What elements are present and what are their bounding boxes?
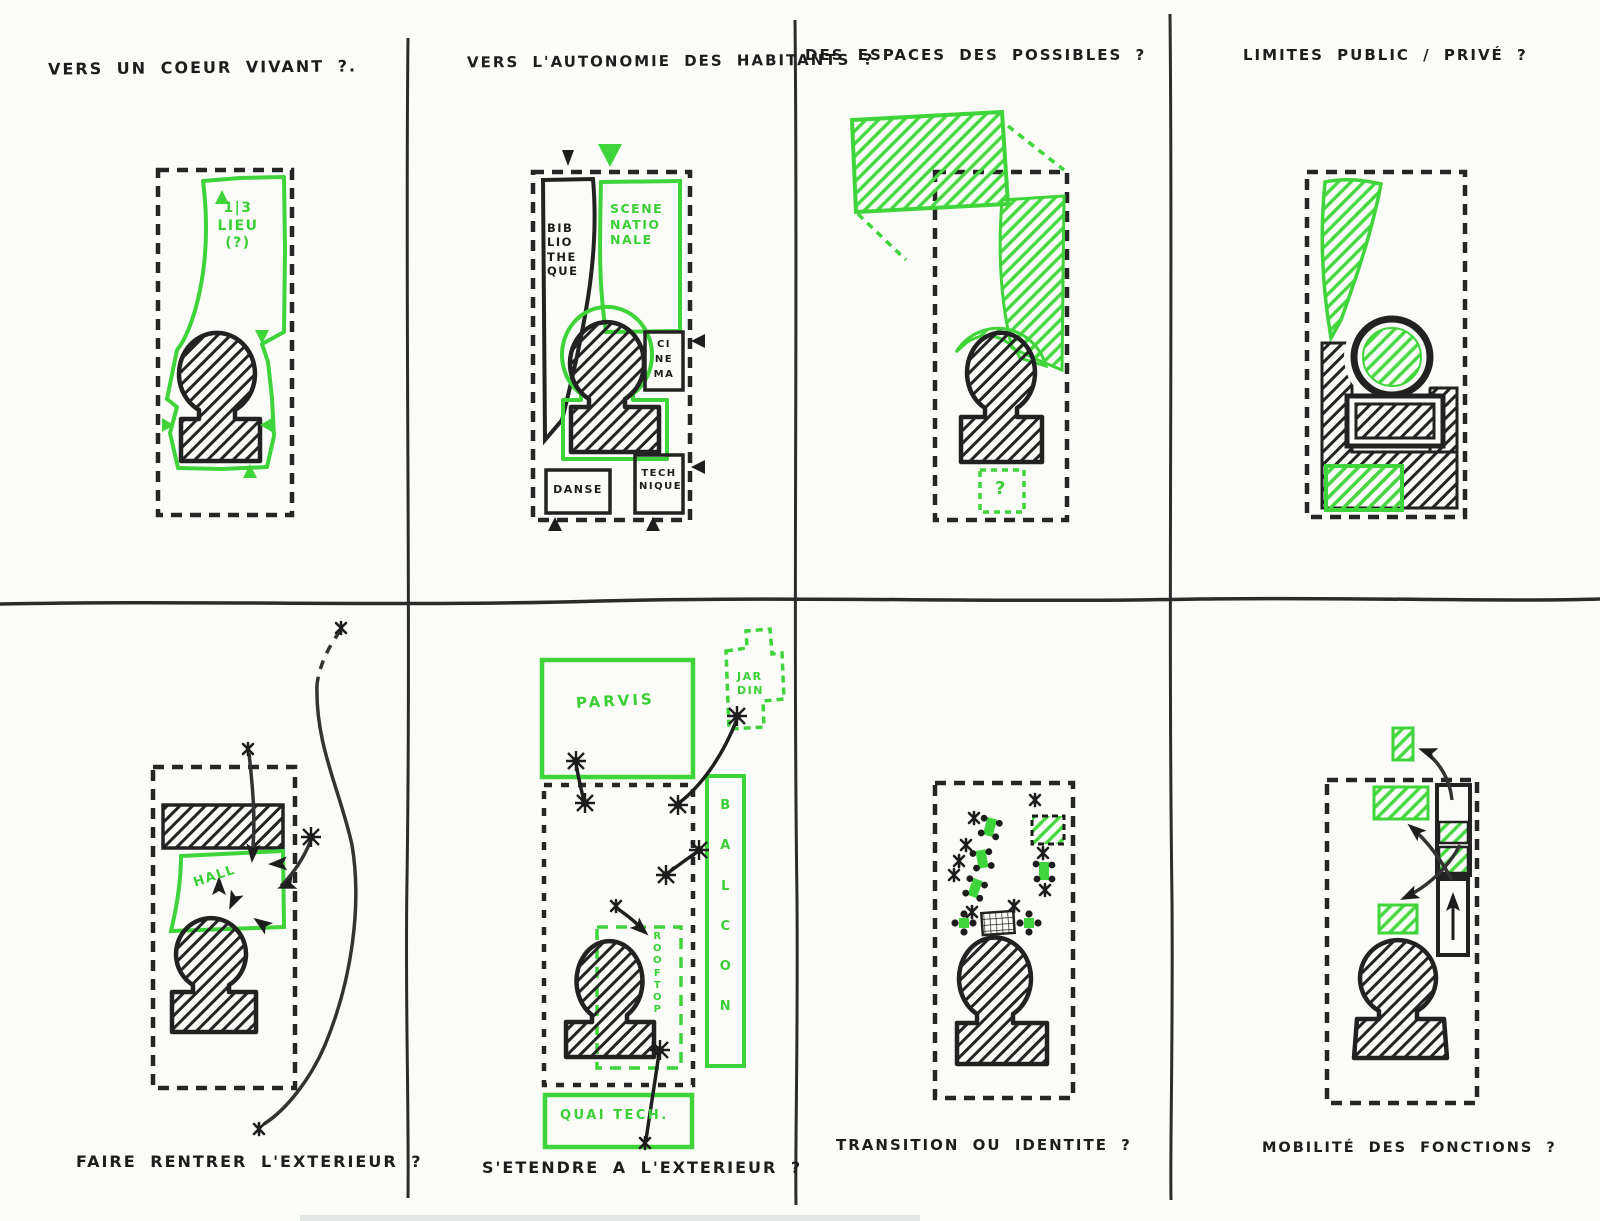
technique-label: TECH NIQUE <box>639 468 679 493</box>
cinema-label: CI NE MA <box>650 337 678 382</box>
divider-horizontal <box>0 599 1600 604</box>
rooftop-label: R O O F T O P <box>650 931 666 1016</box>
building-footprint <box>1354 940 1447 1058</box>
link-marker <box>575 793 595 813</box>
mobility-arrowhead <box>1397 885 1420 906</box>
green-dashed-link-right <box>1008 126 1064 170</box>
link-marker <box>689 840 709 860</box>
exterior-flow-lines <box>249 631 356 1124</box>
panel-title-mobilite: MOBILITÉ DES FONCTIONS ? <box>1262 1140 1557 1156</box>
scene-nationale-label: SCENE NATIO NALE <box>610 201 663 248</box>
movable-stage-block <box>1032 816 1064 844</box>
link-marker <box>650 1040 670 1060</box>
function-block-a <box>1374 787 1428 819</box>
panel-espaces-possibles-sketch <box>852 112 1067 520</box>
link-marker <box>640 1137 650 1149</box>
panel-title-limites: LIMITES PUBLIC / PRIVÉ ? <box>1243 46 1528 64</box>
sketch-sheet: VERS UN COEUR VIVANT ?. VERS L'AUTONOMIE… <box>0 0 1600 1221</box>
panel-title-transition: TRANSITION OU IDENTITE ? <box>836 1136 1132 1154</box>
scan-edge <box>300 1215 920 1221</box>
link-marker <box>668 795 688 815</box>
jardin-label: JAR DIN <box>737 670 764 698</box>
danse-label: DANSE <box>548 483 608 497</box>
hatched-bar <box>163 805 283 848</box>
scattered-markers <box>949 794 1050 918</box>
public-block-bottom <box>1326 466 1402 510</box>
divider-vertical-3 <box>1170 14 1172 1200</box>
grid-deck <box>981 911 1014 935</box>
tiers-lieu-label: 1|3 LIEU (?) <box>206 200 270 253</box>
sketch-artwork <box>0 0 1600 1221</box>
panel-title-coeur-vivant: VERS UN COEUR VIVANT ?. <box>48 56 357 78</box>
building-footprint <box>179 333 260 461</box>
question-label: ? <box>995 478 1007 501</box>
inner-hall-core <box>1356 404 1434 438</box>
panel-mobilite-sketch <box>1327 728 1477 1103</box>
green-dashed-link-left <box>858 214 906 260</box>
hall-outline <box>171 851 284 931</box>
shelf-cell-green-1 <box>1439 822 1468 843</box>
link-marker <box>611 900 621 912</box>
panel-title-etendre: S'ETENDRE A L'EXTERIEUR ? <box>482 1158 802 1177</box>
flow-marker <box>301 827 321 847</box>
flow-marker <box>336 622 346 634</box>
possible-space-block <box>852 112 1008 212</box>
link-marker <box>727 706 747 726</box>
divider-vertical-2 <box>795 20 797 1205</box>
bibliotheque-label: BIB LIO THE QUE <box>547 221 578 279</box>
link-marker <box>656 865 676 885</box>
extension-arrows <box>576 719 737 1140</box>
building-footprint <box>961 333 1042 462</box>
quai-tech-label: QUAI TECH. <box>560 1108 669 1124</box>
panel-title-faire-rentrer: FAIRE RENTRER L'EXTERIEUR ? <box>76 1152 423 1171</box>
panel-transition-sketch <box>935 783 1073 1098</box>
building-footprint <box>172 918 256 1032</box>
function-block-b <box>1379 905 1417 933</box>
function-block-exterior <box>1393 728 1413 760</box>
divider-vertical-1 <box>406 38 408 1198</box>
panel-limites-sketch <box>1307 172 1465 517</box>
link-marker <box>566 751 586 771</box>
panel-faire-rentrer-sketch <box>153 622 356 1135</box>
panel-title-espaces-possibles: DES ESPACES DES POSSIBLES ? <box>805 46 1146 64</box>
building-footprint <box>957 937 1047 1064</box>
flow-marker <box>254 1123 264 1135</box>
building-footprint <box>566 941 654 1057</box>
parvis-outline <box>542 660 693 777</box>
balcon-label: B A L C O N <box>715 786 737 1028</box>
flow-marker <box>243 743 253 755</box>
dome-public-fill <box>1363 328 1421 386</box>
